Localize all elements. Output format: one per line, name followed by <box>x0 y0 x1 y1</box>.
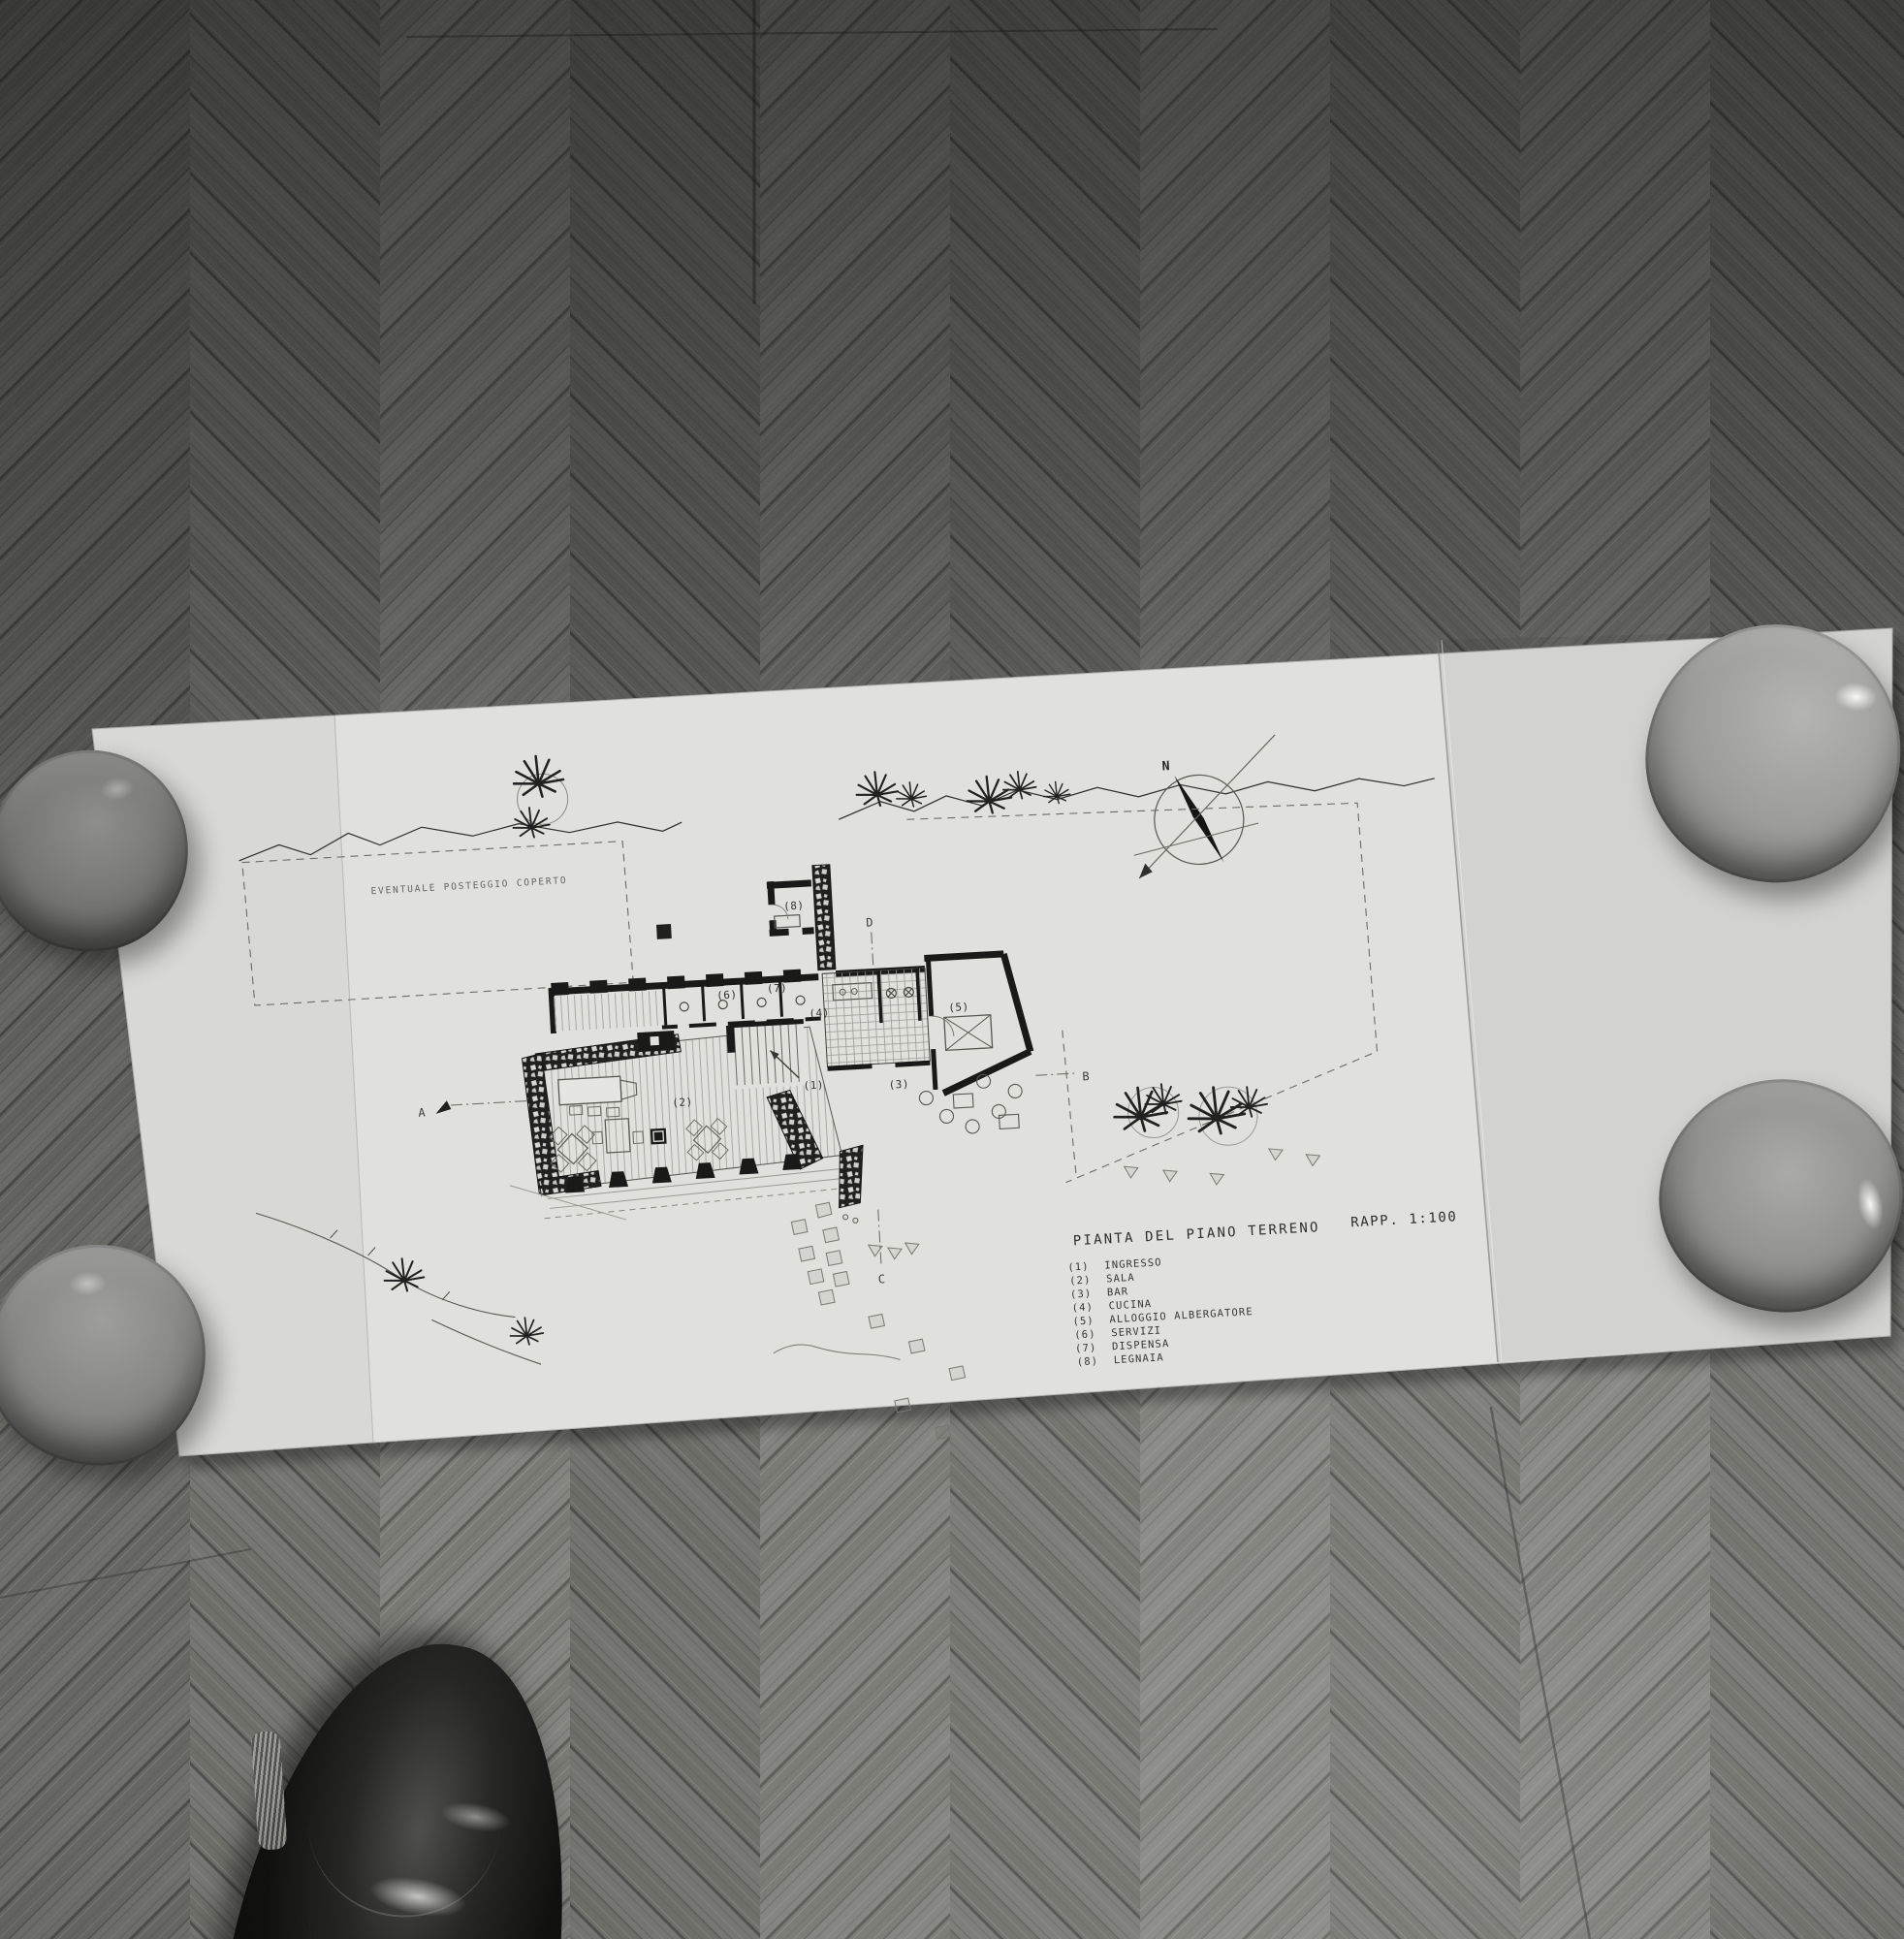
legend-num-6: (6) <box>1074 1328 1096 1341</box>
legend-num-8: (8) <box>1077 1355 1099 1368</box>
section-marker-c: C <box>877 1272 885 1286</box>
legend-num-5: (5) <box>1072 1315 1095 1327</box>
drawing-sheet: N EVENTUALE POSTEGGIO COPERTO A B <box>0 0 1904 1939</box>
room-label-5: (5) <box>948 1001 969 1014</box>
legend-num-2: (2) <box>1069 1274 1092 1287</box>
section-marker-d: D <box>866 915 873 929</box>
legend-label-4: CUCINA <box>1108 1298 1152 1312</box>
bowl-highlight <box>99 776 136 803</box>
room-label-2: (2) <box>672 1096 693 1109</box>
room-label-8: (8) <box>783 899 805 912</box>
legend-num-7: (7) <box>1075 1342 1097 1354</box>
legend-num-1: (1) <box>1067 1260 1090 1273</box>
section-marker-b: B <box>1082 1069 1090 1083</box>
compass-north-label: N <box>1161 759 1170 774</box>
photo-scene: N EVENTUALE POSTEGGIO COPERTO A B <box>0 0 1904 1939</box>
room-label-4: (4) <box>809 1006 830 1020</box>
room-label-3: (3) <box>888 1078 909 1092</box>
room-label-6: (6) <box>716 988 738 1001</box>
room-label-1: (1) <box>803 1078 824 1092</box>
bowl-highlight <box>68 1270 107 1297</box>
bowl-highlight <box>1833 682 1879 714</box>
legend-label-3: BAR <box>1107 1286 1129 1298</box>
legend-label-2: SALA <box>1106 1272 1135 1286</box>
bowl-highlight <box>1854 1177 1888 1232</box>
stairs <box>726 1022 808 1090</box>
legend-num-4: (4) <box>1071 1301 1094 1314</box>
legend-num-3: (3) <box>1070 1287 1093 1300</box>
room-label-7: (7) <box>767 981 788 995</box>
